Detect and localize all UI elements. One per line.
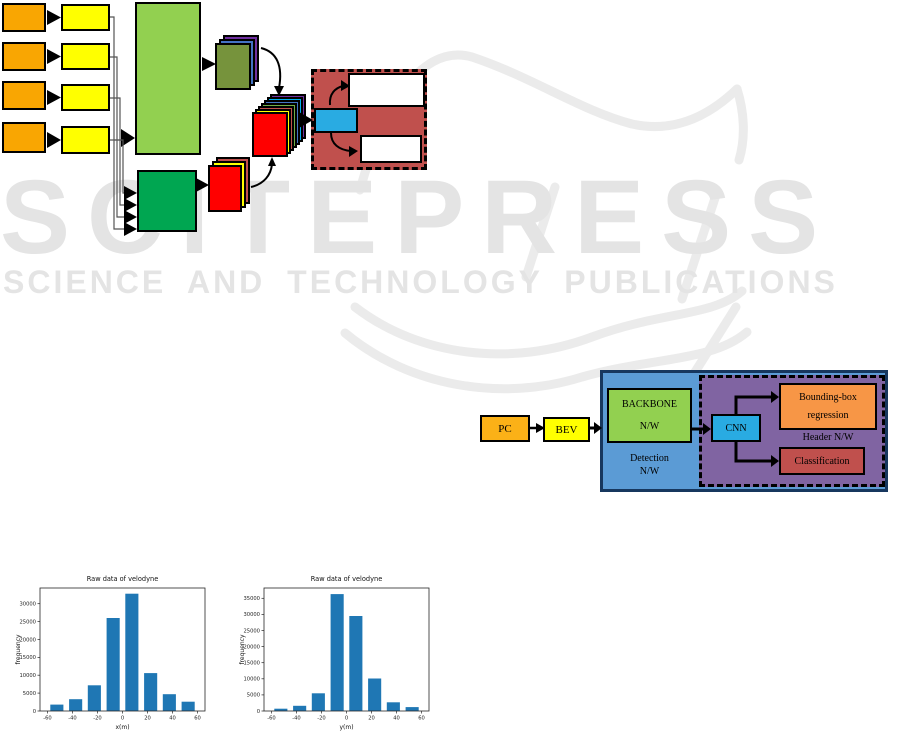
- svg-text:5000: 5000: [247, 693, 260, 699]
- watermark-subtitle-text: SCIENCE AND TECHNOLOGY PUBLICATIONS: [3, 264, 901, 301]
- bev-box: BEV: [543, 417, 590, 442]
- svg-text:10000: 10000: [243, 677, 260, 683]
- paper-figure-page: { "watermark": { "brand": "SCITEPRESS", …: [0, 0, 901, 731]
- backbone-block-large: [135, 2, 201, 155]
- backbone-network-box: BACKBONE N/W: [607, 388, 692, 443]
- bbox-label-line1: Bounding-box: [799, 392, 857, 403]
- svg-text:20: 20: [368, 716, 375, 722]
- watermark-brand-text: SCITEPRESS: [0, 158, 901, 278]
- classification-label: Classification: [795, 456, 850, 467]
- svg-text:0: 0: [257, 709, 260, 715]
- head-output-box-bottom: [360, 135, 422, 163]
- svg-text:-60: -60: [267, 716, 275, 722]
- svg-text:0: 0: [33, 709, 36, 715]
- svg-text:30000: 30000: [19, 602, 36, 608]
- pc-box: PC: [480, 415, 530, 442]
- detection-label-line2: N/W: [640, 466, 659, 477]
- svg-text:30000: 30000: [243, 612, 260, 618]
- cnn-box: CNN: [711, 414, 761, 442]
- svg-text:40: 40: [169, 716, 176, 722]
- backbone-label-line1: BACKBONE: [622, 399, 677, 410]
- pc-label: PC: [498, 423, 511, 435]
- classification-box: Classification: [779, 447, 865, 475]
- svg-text:Raw data of velodyne: Raw data of velodyne: [87, 575, 159, 583]
- svg-text:60: 60: [418, 716, 425, 722]
- detection-network-label: Detection N/W: [607, 452, 692, 478]
- backbone-block-small: [137, 170, 197, 232]
- head-cnn-box: [314, 108, 358, 133]
- svg-text:0: 0: [121, 716, 124, 722]
- svg-text:25000: 25000: [243, 628, 260, 634]
- detection-label-line1: Detection: [630, 453, 669, 464]
- svg-text:x(m): x(m): [115, 724, 129, 731]
- red-feature-stack-front: [208, 165, 242, 212]
- svg-text:-20: -20: [317, 716, 325, 722]
- svg-text:20: 20: [144, 716, 151, 722]
- svg-text:frequency: frequency: [15, 634, 22, 665]
- svg-text:-40: -40: [68, 716, 76, 722]
- orange-input-box-3: [2, 81, 46, 110]
- histogram-y: 05000100001500020000250003000035000-60-4…: [237, 565, 447, 731]
- cnn-label: CNN: [725, 423, 746, 434]
- orange-input-box-1: [2, 3, 46, 32]
- header-network-label: Header N/W: [779, 430, 877, 445]
- orange-input-box-4: [2, 122, 46, 153]
- svg-text:-60: -60: [43, 716, 51, 722]
- yellow-input-box-4: [61, 126, 110, 154]
- svg-text:y(m): y(m): [339, 724, 353, 731]
- header-label-text: Header N/W: [803, 432, 854, 443]
- svg-text:40: 40: [393, 716, 400, 722]
- yellow-input-box-2: [61, 43, 110, 70]
- svg-text:35000: 35000: [243, 596, 260, 602]
- bev-label: BEV: [556, 424, 578, 436]
- svg-text:-40: -40: [292, 716, 300, 722]
- fused-feature-stack-front: [252, 112, 288, 157]
- svg-text:frequency: frequency: [239, 634, 246, 665]
- yellow-input-box-1: [61, 4, 110, 31]
- orange-input-box-2: [2, 42, 46, 71]
- bbox-label-line2: regression: [807, 410, 848, 421]
- svg-text:60: 60: [194, 716, 201, 722]
- bounding-box-regression-box: Bounding-box regression: [779, 383, 877, 430]
- head-output-box-top: [348, 73, 425, 107]
- histogram-svg: 050001000015000200002500030000-60-40-200…: [13, 565, 223, 731]
- histogram-svg: 05000100001500020000250003000035000-60-4…: [237, 565, 447, 731]
- svg-text:0: 0: [345, 716, 348, 722]
- yellow-input-box-3: [61, 84, 110, 111]
- svg-text:Raw data of velodyne: Raw data of velodyne: [311, 575, 383, 583]
- svg-text:10000: 10000: [19, 673, 36, 679]
- histogram-x: 050001000015000200002500030000-60-40-200…: [13, 565, 223, 731]
- svg-text:5000: 5000: [23, 691, 36, 697]
- svg-text:-20: -20: [93, 716, 101, 722]
- svg-text:25000: 25000: [19, 619, 36, 625]
- olive-feature-stack-front: [215, 43, 251, 90]
- backbone-label-line2: N/W: [640, 421, 659, 432]
